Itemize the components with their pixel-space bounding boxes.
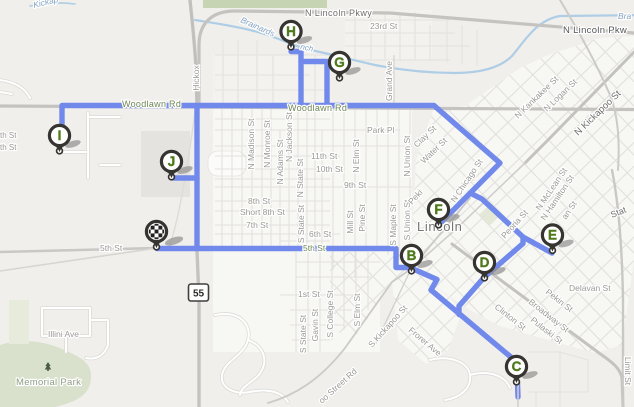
svg-text:10th St: 10th St — [316, 164, 344, 174]
svg-text:Gavin St: Gavin St — [310, 308, 320, 341]
svg-text:Hickox: Hickox — [191, 65, 201, 91]
svg-text:Mill St: Mill St — [345, 210, 355, 234]
svg-text:B: B — [407, 248, 417, 263]
svg-text:S Union St: S Union St — [402, 199, 412, 240]
svg-text:F: F — [434, 202, 442, 217]
svg-text:9th St: 9th St — [344, 180, 367, 190]
svg-text:G: G — [334, 55, 345, 70]
svg-text:Park Pl: Park Pl — [367, 125, 395, 135]
svg-text:Memorial Park: Memorial Park — [16, 377, 81, 388]
svg-text:6th St: 6th St — [309, 229, 332, 239]
svg-text:Illini Ave: Illini Ave — [48, 329, 79, 339]
svg-text:J: J — [168, 154, 176, 169]
svg-text:8th St: 8th St — [248, 196, 271, 206]
svg-text:N State St: N State St — [295, 158, 305, 197]
svg-text:Limit St: Limit St — [623, 357, 633, 386]
svg-text:Bra: Bra — [618, 11, 632, 21]
svg-text:1st St: 1st St — [298, 289, 320, 299]
svg-text:N Adams St: N Adams St — [275, 139, 285, 185]
svg-text:S Maple St: S Maple St — [388, 204, 398, 246]
svg-text:S College St: S College St — [325, 290, 335, 338]
svg-text:Grand Ave: Grand Ave — [384, 61, 394, 101]
svg-text:7th St: 7th St — [246, 220, 269, 230]
svg-text:E: E — [548, 228, 557, 243]
svg-text:th St: th St — [0, 131, 17, 140]
svg-text:5th St: 5th St — [303, 243, 326, 253]
svg-text:N Jackson St: N Jackson St — [284, 111, 294, 162]
svg-text:Pine St: Pine St — [357, 204, 367, 232]
svg-text:D: D — [480, 255, 490, 270]
svg-text:S Elm St: S Elm St — [352, 293, 362, 327]
svg-text:N Lincoln Pkwy: N Lincoln Pkwy — [305, 8, 372, 18]
svg-text:H: H — [286, 24, 296, 39]
svg-text:N Union St: N Union St — [402, 135, 412, 177]
svg-text:Woodlawn Rd: Woodlawn Rd — [288, 103, 347, 113]
svg-text:S State St: S State St — [296, 204, 306, 243]
svg-text:N Elm St: N Elm St — [351, 139, 361, 173]
svg-text:11th St: 11th St — [311, 151, 338, 161]
svg-text:Woodlawn Rd: Woodlawn Rd — [122, 99, 181, 109]
svg-text:N Monroe St: N Monroe St — [262, 120, 272, 168]
svg-text:Delavan St: Delavan St — [569, 283, 611, 293]
svg-text:23rd St: 23rd St — [370, 21, 398, 31]
svg-text:N Madison St: N Madison St — [246, 118, 256, 170]
svg-text:I: I — [58, 128, 62, 143]
svg-text:th St: th St — [0, 143, 17, 152]
svg-text:5th St: 5th St — [100, 243, 123, 253]
svg-text:N Lincoln Pkw: N Lincoln Pkw — [563, 25, 627, 36]
svg-text:S State St: S State St — [298, 314, 308, 353]
svg-text:C: C — [512, 359, 522, 374]
svg-text:Short 8th St: Short 8th St — [240, 207, 286, 217]
svg-text:55: 55 — [193, 289, 205, 300]
